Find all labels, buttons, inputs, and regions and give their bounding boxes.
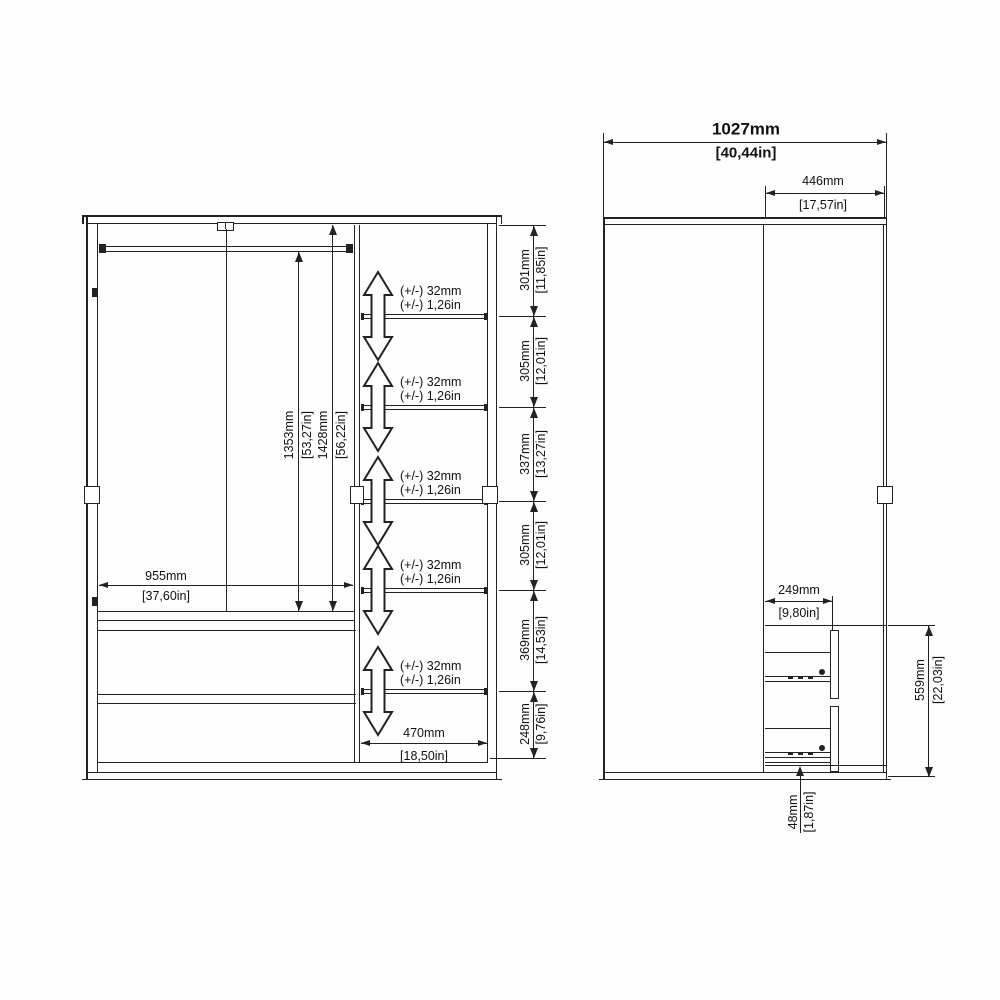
spacing-label-in: [12,01in] xyxy=(535,337,548,385)
spacing-label-mm: 337mm xyxy=(519,433,532,475)
arrowhead-icon xyxy=(530,408,538,418)
line xyxy=(765,762,831,763)
rail-dash xyxy=(808,753,813,755)
hinge-plate xyxy=(877,486,893,504)
ext-line xyxy=(499,225,546,226)
spacing-label-in: [11,85in] xyxy=(535,246,548,293)
line xyxy=(86,223,497,224)
hinge-mark xyxy=(92,597,98,606)
shelf-adjust-arrow-icon xyxy=(361,455,395,547)
arrowhead-icon xyxy=(796,766,804,776)
drawer-depth-label-mm: 249mm xyxy=(778,584,820,597)
rail-dash xyxy=(788,753,793,755)
ext-line xyxy=(886,133,887,217)
fv-bottom-shelf xyxy=(97,611,355,612)
shelf-adjust-arrow-icon xyxy=(361,270,395,362)
shelf-pin xyxy=(484,688,487,695)
drawer-unit-height-label-mm: 559mm xyxy=(914,659,927,701)
dim-line xyxy=(99,585,353,586)
rail-center-support xyxy=(226,229,227,611)
fv-drawer1-bottom xyxy=(97,694,356,695)
sv-door-edge xyxy=(763,224,764,773)
arrowhead-icon xyxy=(877,139,886,145)
arrowhead-icon xyxy=(530,591,538,601)
rail-end-cap xyxy=(346,244,353,253)
shelf-section-width-label-in: [18,50in] xyxy=(400,750,448,763)
arrowhead-icon xyxy=(823,598,832,604)
shelf-adjust-arrow-icon xyxy=(361,544,395,636)
fv-drawer2-top xyxy=(97,703,356,704)
sv-top-cap xyxy=(603,217,887,219)
arrowhead-icon xyxy=(766,190,775,196)
adjust-label-mm: (+/-) 32mm xyxy=(400,285,461,298)
adjust-label-in: (+/-) 1,26in xyxy=(400,299,461,312)
arrowhead-icon xyxy=(530,681,538,691)
shelf-adjust-arrow-icon xyxy=(361,361,395,453)
fv-drawer2-bottom xyxy=(97,762,356,763)
line xyxy=(603,224,887,225)
arrowhead-icon xyxy=(295,601,303,611)
overall-width-label-mm: 1027mm xyxy=(712,121,780,138)
arrowhead-icon xyxy=(530,580,538,590)
spacing-label-mm: 305mm xyxy=(519,340,532,382)
arrowhead-icon xyxy=(875,190,884,196)
interior-width-label-in: [37,60in] xyxy=(142,590,190,603)
arrowhead-icon xyxy=(530,491,538,501)
door-panel-width-label-in: [17,57in] xyxy=(799,199,847,212)
rail-dash xyxy=(798,677,803,679)
interior-width-label-mm: 955mm xyxy=(145,570,187,583)
line xyxy=(86,772,497,773)
spacing-label-in: [9,76in] xyxy=(535,703,548,744)
line xyxy=(225,222,226,229)
dim-line xyxy=(603,142,887,144)
ext-line xyxy=(499,691,546,692)
dim-line xyxy=(765,601,832,602)
arrowhead-icon xyxy=(361,740,370,746)
line xyxy=(82,215,84,224)
rail-end-cap xyxy=(99,244,106,253)
spacing-label-in: [13,27in] xyxy=(535,430,548,478)
sv-drawer1-top xyxy=(765,652,831,653)
arrowhead-icon xyxy=(925,626,933,636)
sv-drawer-unit-bottom xyxy=(765,765,887,766)
arrowhead-icon xyxy=(478,740,487,746)
adjust-label-in: (+/-) 1,26in xyxy=(400,674,461,687)
arrowhead-icon xyxy=(344,582,353,588)
dim-line xyxy=(361,743,487,744)
adjust-label-mm: (+/-) 32mm xyxy=(400,470,461,483)
arrowhead-icon xyxy=(329,601,337,611)
rail-height-label-in: [53,27in] xyxy=(301,411,314,459)
door-panel-width-label-mm: 446mm xyxy=(802,175,844,188)
dim-line xyxy=(765,193,885,194)
plinth-height-label-in: [1,87in] xyxy=(803,791,816,832)
overall-width-label-in: [40,44in] xyxy=(716,146,777,161)
arrowhead-icon xyxy=(530,306,538,316)
shelf-pin xyxy=(484,404,487,411)
adjust-label-in: (+/-) 1,26in xyxy=(400,484,461,497)
hinge-plate xyxy=(482,486,498,504)
line xyxy=(97,620,355,621)
ext-line xyxy=(490,758,546,759)
arrowhead-icon xyxy=(530,692,538,702)
arrowhead-icon xyxy=(530,748,538,758)
arrowhead-icon xyxy=(604,139,613,145)
interior-height-label-in: [56,22in] xyxy=(335,411,348,459)
shelf-adjust-arrow-icon xyxy=(361,645,395,737)
line xyxy=(501,215,503,224)
sv-drawer2-front xyxy=(830,706,839,772)
dim-line xyxy=(928,625,929,777)
spacing-label-in: [12,01in] xyxy=(535,521,548,569)
arrowhead-icon xyxy=(530,397,538,407)
spacing-label-mm: 301mm xyxy=(519,249,532,291)
arrowhead-icon xyxy=(329,225,337,235)
arrowhead-icon xyxy=(295,252,303,262)
rail-wheel xyxy=(819,669,825,675)
spacing-label-mm: 305mm xyxy=(519,524,532,566)
arrowhead-icon xyxy=(530,226,538,236)
ext-line xyxy=(884,186,885,217)
spacing-label-mm: 369mm xyxy=(519,619,532,661)
arrowhead-icon xyxy=(99,582,108,588)
ext-line xyxy=(499,590,546,591)
ext-line xyxy=(499,316,546,317)
line xyxy=(603,772,887,773)
rail-dash xyxy=(798,753,803,755)
adjust-label-in: (+/-) 1,26in xyxy=(400,573,461,586)
spacing-label-in: [14,53in] xyxy=(535,616,548,664)
hinge-mark xyxy=(92,288,98,297)
adjust-label-mm: (+/-) 32mm xyxy=(400,376,461,389)
line xyxy=(765,681,831,682)
arrowhead-icon xyxy=(766,598,775,604)
adjust-label-mm: (+/-) 32mm xyxy=(400,559,461,572)
fv-base xyxy=(82,779,502,781)
adjust-label-mm: (+/-) 32mm xyxy=(400,660,461,673)
hinge-plate xyxy=(84,486,100,504)
rail-wheel xyxy=(819,745,825,751)
rail-height-label-mm: 1353mm xyxy=(283,411,296,460)
sv-drawer2-top xyxy=(765,728,831,729)
drawer-unit-height-label-in: [22,03in] xyxy=(932,656,945,704)
sv-drawer-unit-top xyxy=(765,625,887,626)
arrowhead-icon xyxy=(925,767,933,777)
plinth-height-label-mm: 48mm xyxy=(787,795,800,830)
line xyxy=(765,757,831,758)
sv-drawer1-front xyxy=(830,630,839,699)
arrowhead-icon xyxy=(530,317,538,327)
fv-drawer1-top xyxy=(97,630,356,631)
shelf-pin xyxy=(484,587,487,594)
drawer-depth-label-in: [9,80in] xyxy=(778,607,819,620)
rail-dash xyxy=(808,677,813,679)
interior-height-label-mm: 1428mm xyxy=(317,411,330,460)
spacing-label-mm: 248mm xyxy=(519,703,532,745)
shelf-section-width-label-mm: 470mm xyxy=(403,727,445,740)
adjust-label-in: (+/-) 1,26in xyxy=(400,390,461,403)
wardrobe-technical-drawing: (+/-) 32mm (+/-) 1,26in (+/-) 32mm (+/-)… xyxy=(0,0,1000,1000)
shelf-pin xyxy=(484,313,487,320)
fv-top-cap xyxy=(82,215,502,217)
sv-left-wall xyxy=(603,217,605,780)
sv-base xyxy=(599,779,891,781)
arrowhead-icon xyxy=(530,502,538,512)
ext-line xyxy=(603,133,604,217)
ext-line xyxy=(499,501,546,502)
rail-dash xyxy=(788,677,793,679)
ext-line xyxy=(499,407,546,408)
